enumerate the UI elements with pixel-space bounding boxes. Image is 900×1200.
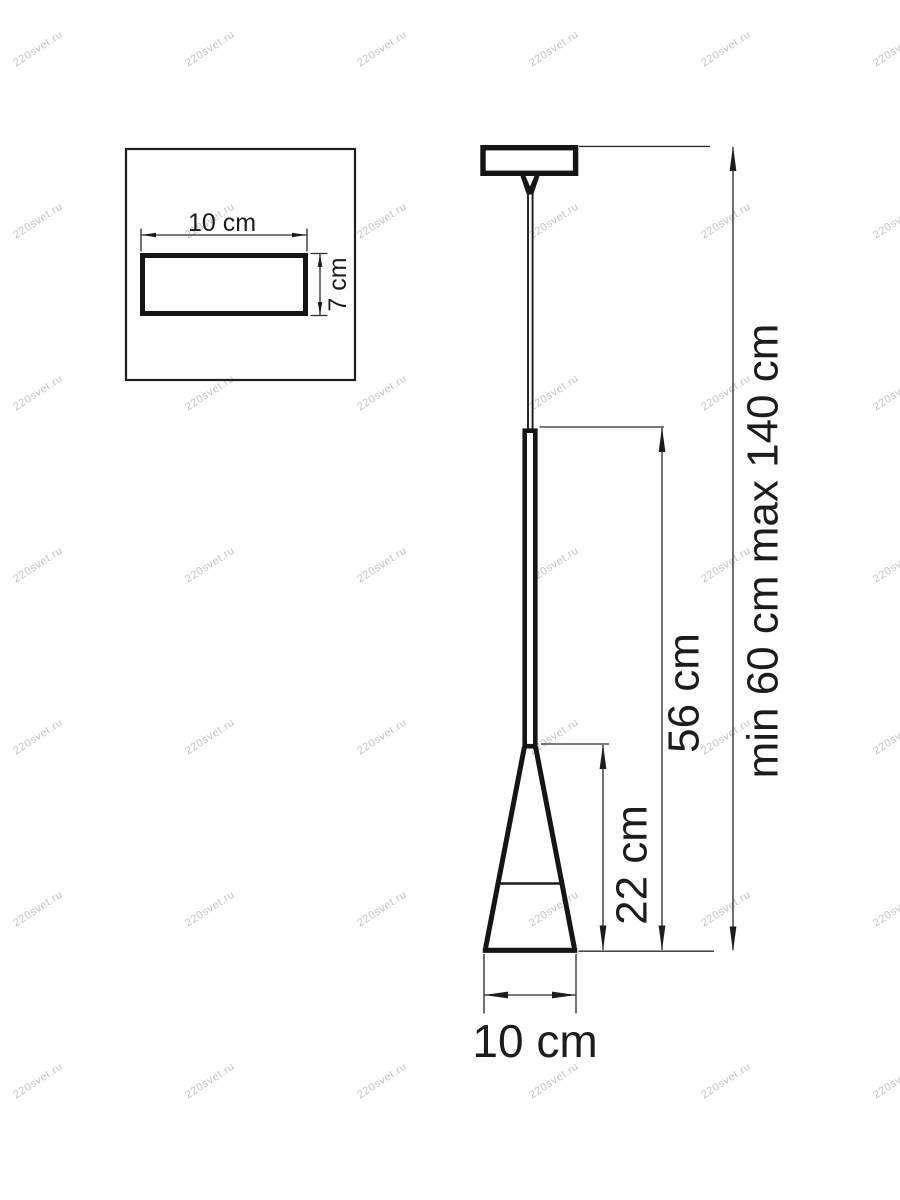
arrowhead-down-icon <box>318 302 323 315</box>
shade-diameter-label: 10 cm <box>472 1015 597 1067</box>
fixture-height-label: 56 cm <box>660 633 709 753</box>
canopy-width-label: 10 cm <box>188 209 256 237</box>
arrowhead-up-icon <box>318 254 323 267</box>
arrowhead-up-icon <box>600 744 607 769</box>
shade-height-label: 22 cm <box>608 805 657 925</box>
arrowhead-down-icon <box>659 926 666 951</box>
dimension-annotations: min 60 cm max 140 cm 56 cm 22 cm 10 cm <box>472 146 787 1067</box>
arrowhead-left-icon <box>484 992 508 999</box>
canopy-inset: 10 cm 7 cm <box>126 149 355 380</box>
arrowhead-left-icon <box>142 233 157 238</box>
arrowhead-down-icon <box>600 926 607 951</box>
canopy-front-view <box>143 256 306 314</box>
shade-cone-left-side <box>486 747 525 948</box>
arrowhead-up-icon <box>730 146 737 171</box>
shade-cone-right-side <box>536 747 575 948</box>
arrowhead-up-icon <box>659 427 666 452</box>
product-dimension-image: 220svet.ru220svet.ru220svet.ru220svet.ru… <box>0 0 900 1200</box>
pendant-lamp-dimension-drawing: 10 cm 7 cm <box>0 0 900 1200</box>
arrowhead-down-icon <box>730 927 737 952</box>
ceiling-plate <box>483 148 576 174</box>
lamp-stem-tube <box>525 431 536 747</box>
suspension-range-label: min 60 cm max 140 cm <box>739 324 788 779</box>
arrowhead-right-icon <box>292 233 307 238</box>
arrowhead-right-icon <box>552 992 576 999</box>
pendant-lamp-view <box>483 148 577 951</box>
canopy-height-label: 7 cm <box>324 257 352 311</box>
